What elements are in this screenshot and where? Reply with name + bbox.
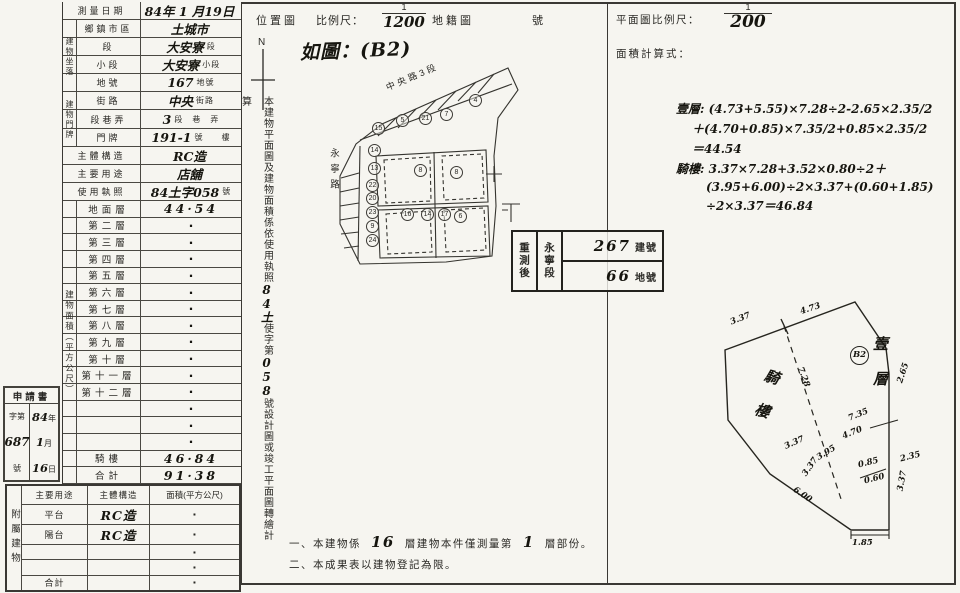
note2-text: 二、本成果表以建物登記為限。 <box>289 557 457 572</box>
section-divider <box>607 2 608 585</box>
resurvey-values: 267 建號 66 地號 <box>563 232 662 290</box>
area-row: 地面層 44·54 <box>63 201 241 218</box>
floor-value: · <box>141 234 241 250</box>
floor-label: 合計 <box>77 467 141 483</box>
note1-measured-floor: 1 <box>523 533 535 551</box>
group-label-building-area: 建物面積（平方公尺） <box>63 203 76 481</box>
attachment-structure: RC造 <box>88 525 150 544</box>
app-day: 16日 <box>32 461 56 475</box>
lot-number-marker: 20 <box>366 192 379 205</box>
row-value: RC造 <box>141 147 241 164</box>
floorplan-scale-label: 平面圖比例尺： <box>616 12 700 27</box>
row-value: 191-1 號 樓 <box>141 129 241 146</box>
source-statement: 本建物平面圖及建物面積係依使用執照84土使字第058號設計圖或竣工平面圖轉繪計算 <box>243 96 268 542</box>
structure-value: RC造 <box>101 525 137 544</box>
attachment-building-table: 附屬建物 主要用途 主體構造 面積(平方公尺) 平台 RC造 · 陽台 RC造 … <box>5 484 241 592</box>
handwritten-value: 土城市 <box>171 19 209 38</box>
north-letter: N <box>258 37 265 48</box>
lot-number-marker: 5 <box>396 114 409 127</box>
row-label: 主要用途 <box>63 165 141 182</box>
floor-value: · <box>141 434 241 450</box>
area-row: 第六層 · <box>63 284 241 301</box>
resurvey-stamp: 重測後 永寧段 267 建號 66 地號 <box>511 230 664 292</box>
area-calculation-label: 面積計算式： <box>616 46 691 61</box>
calculation-line: 壹層: (4.73+5.55)×7.28÷2-2.65×2.35/2 <box>676 100 960 117</box>
table-row: 地號 167 地號 <box>63 74 241 92</box>
attachment-rows: 主要用途 主體構造 面積(平方公尺) 平台 RC造 · 陽台 RC造 · <box>22 486 239 590</box>
lot-number-marker: 4 <box>469 94 482 107</box>
resurvey-title: 重測後 <box>513 232 538 290</box>
lot-number-marker: 9 <box>366 220 379 233</box>
floor-value: · <box>141 301 241 317</box>
attachment-structure <box>88 545 150 559</box>
table-row: 門牌 191-1 號 樓 <box>63 129 241 147</box>
area-row: 第九層 · <box>63 334 241 351</box>
area-row: 騎樓 46·84 <box>63 451 241 468</box>
floor-label: 第十一層 <box>77 367 141 383</box>
row-value: 中央 街路 <box>141 92 241 109</box>
row-label: 街路 <box>77 92 141 109</box>
attachment-side-label: 附屬建物 <box>7 486 22 590</box>
row-label: 測量日期 <box>63 2 141 19</box>
row-value: 84年 1 月19日 <box>141 2 241 19</box>
statement-part2: 使字第 <box>262 323 273 356</box>
handwritten-value: 191-1 <box>152 130 192 145</box>
floor-value: 44·54 <box>141 201 241 217</box>
application-number: 687 <box>4 435 29 449</box>
printed-suffix: 地號 <box>197 77 215 88</box>
row-label: 段巷弄 <box>77 110 141 127</box>
attachment-usage: 陽台 <box>22 525 88 544</box>
floor-label <box>77 417 141 433</box>
statement-permit-no: 058 <box>260 356 274 398</box>
floor-label: 第九層 <box>77 334 141 350</box>
lot-number-marker: 24 <box>366 234 379 247</box>
table-row: 街路 中央 街路 <box>63 92 241 110</box>
row-value: 店舖 <box>141 165 241 182</box>
fp-scale-numerator: 1 <box>745 3 750 12</box>
area-row: 第八層 · <box>63 317 241 334</box>
street-label-yongning-road: 永寧路 <box>326 148 340 195</box>
area-value: 91·38 <box>164 468 218 483</box>
floor-label: 第五層 <box>77 268 141 284</box>
note1-part1: 一、本建物係 <box>289 536 361 551</box>
land-number-unit: 地號 <box>635 269 657 284</box>
area-value: · <box>189 351 194 366</box>
area-value: · <box>189 318 194 333</box>
row-value: 大安寮 段 <box>141 38 241 55</box>
floor-label: 第十層 <box>77 351 141 367</box>
floor-label: 第二層 <box>77 218 141 234</box>
handwritten-value: RC造 <box>173 146 206 165</box>
floor-label: 騎樓 <box>77 451 141 467</box>
plot-label-first-floor: 壹層 <box>870 336 891 406</box>
lot-number-marker: 7 <box>440 108 453 121</box>
lot-number-marker: 8 <box>414 164 427 177</box>
area-value: · <box>189 251 194 266</box>
floor-value: 91·38 <box>141 467 241 483</box>
number-suffix: 號 <box>13 463 21 474</box>
row-label: 段 <box>77 38 141 55</box>
floor-value: · <box>141 417 241 433</box>
group-label-building-location: 建物坐落 <box>63 21 76 92</box>
handwritten-value: 大安寮 <box>162 55 200 74</box>
resurvey-land-row: 66 地號 <box>563 262 662 290</box>
floor-value: · <box>141 384 241 400</box>
floor-label: 第四層 <box>77 251 141 267</box>
statement-permit-year: 84土 <box>260 283 274 323</box>
calculation-line: 騎樓: 3.37×7.28+3.52×0.80÷2＋ <box>676 160 960 177</box>
attachment-usage: 平台 <box>22 505 88 524</box>
row-label: 主體構造 <box>63 147 141 164</box>
table-row: 段 大安寮 段 <box>63 38 241 56</box>
table-row: 主要用途 店舖 <box>63 165 241 183</box>
table-row: 主體構造 RC造 <box>63 147 241 165</box>
area-row: · <box>63 434 241 451</box>
area-value: · <box>189 218 194 233</box>
floor-value: · <box>141 401 241 417</box>
area-row: 第十層 · <box>63 351 241 368</box>
table-row: 使用執照 84土字058 號 <box>63 183 241 201</box>
plot-linework <box>700 292 958 568</box>
attachment-header: 主要用途 主體構造 面積(平方公尺) <box>22 486 239 505</box>
north-arrow-icon: N <box>250 34 276 114</box>
land-number: 66 <box>606 267 631 285</box>
calculation-line: ÷2×3.37＝46.84 <box>706 197 960 214</box>
area-row: 第二層 · <box>63 218 241 235</box>
dimension-label: 1.85 <box>852 538 873 548</box>
printed-suffix: 段 巷 弄 <box>174 114 219 125</box>
attachment-row: · <box>22 560 239 575</box>
note1-part2: 層建物本件僅測量第 <box>405 536 513 551</box>
floor-label <box>77 401 141 417</box>
attachment-row: 陽台 RC造 · <box>22 525 239 545</box>
area-value: · <box>189 334 194 349</box>
lot-number-marker: 13 <box>368 162 381 175</box>
area-value: · <box>189 384 194 399</box>
attachment-structure <box>88 576 150 590</box>
handwritten-value: 大安寮 <box>166 37 204 56</box>
area-calculation-block: 壹層: (4.73+5.55)×7.28÷2-2.65×2.35/2 ＋(4.7… <box>676 100 960 217</box>
building-info-table: 測量日期 84年 1 月19日 鄉鎮市區 土城市 段 大安寮 <box>62 2 241 201</box>
area-row: 第十二層 · <box>63 384 241 401</box>
printed-suffix: 號 <box>222 186 231 197</box>
area-value: · <box>189 235 194 250</box>
floor-value: · <box>141 367 241 383</box>
area-value: 46·84 <box>164 451 218 466</box>
attachment-area: · <box>150 505 239 524</box>
area-row: · <box>63 417 241 434</box>
header-usage: 主要用途 <box>22 486 88 504</box>
floor-label: 第六層 <box>77 284 141 300</box>
floor-value: · <box>141 218 241 234</box>
table-row: 小段 大安寮 小段 <box>63 56 241 74</box>
number-prefix: 字第 <box>9 411 25 422</box>
row-label: 門牌 <box>77 129 141 146</box>
floor-label: 第七層 <box>77 301 141 317</box>
attachment-row: 合計 · <box>22 576 239 590</box>
handwritten-value: 84土字058 <box>151 182 220 201</box>
handwritten-value: 167 <box>167 75 193 90</box>
floor-label: 第三層 <box>77 234 141 250</box>
building-number-unit: 建號 <box>635 239 657 254</box>
table-row: 測量日期 84年 1 月19日 <box>63 2 241 20</box>
handwritten-value: 店舖 <box>177 164 202 183</box>
area-value: · <box>189 285 194 300</box>
printed-suffix: 小段 <box>202 59 220 70</box>
floorplan-scale-fraction: 1 200 <box>724 3 772 30</box>
application-body: 字第 687 號 84年 1月 16日 <box>5 404 58 481</box>
statement-part1: 本建物平面圖及建物面積係依使用執照 <box>262 96 273 283</box>
attachment-row: 平台 RC造 · <box>22 505 239 525</box>
attachment-structure <box>88 560 150 574</box>
handwritten-value: 84年 1 月19日 <box>145 1 235 20</box>
floor-label: 第十二層 <box>77 384 141 400</box>
attachment-row: · <box>22 545 239 560</box>
note1-floors: 16 <box>371 533 395 551</box>
attachment-usage: 合計 <box>22 576 88 590</box>
area-value: · <box>189 401 194 416</box>
calculation-line: (3.95+6.00)÷2×3.37+(0.60+1.85) <box>706 180 960 194</box>
attachment-area: · <box>150 560 239 574</box>
area-value: · <box>189 268 194 283</box>
fp-scale-denominator: 200 <box>730 15 766 30</box>
application-title: 申請書 <box>5 388 58 404</box>
floor-area-table: 地面層 44·54 第二層 · 第三層 · <box>62 201 241 484</box>
location-scale-label: 比例尺： <box>316 12 364 28</box>
attachment-structure: RC造 <box>88 505 150 524</box>
area-row: 合計 91·38 <box>63 467 241 484</box>
cadastral-map-label: 地籍圖 <box>432 12 474 28</box>
header-area: 面積(平方公尺) <box>150 486 239 504</box>
floor-value: 46·84 <box>141 451 241 467</box>
row-value: 3 段 巷 弄 <box>141 110 241 127</box>
area-value: · <box>189 301 194 316</box>
building-number: 267 <box>594 237 631 255</box>
attachment-area: · <box>150 545 239 559</box>
area-row: 第四層 · <box>63 251 241 268</box>
area-row: 第五層 · <box>63 268 241 285</box>
scale-denominator: 1200 <box>383 15 425 30</box>
row-value: 土城市 <box>141 20 241 37</box>
attachment-usage <box>22 560 88 574</box>
handwritten-value: 3 <box>163 112 172 127</box>
lot-number-marker: 16 <box>401 208 414 221</box>
floor-value: · <box>141 334 241 350</box>
lot-number-marker: 8 <box>450 166 463 179</box>
row-label: 鄉鎮市區 <box>77 20 141 37</box>
row-value: 167 地號 <box>141 74 241 91</box>
lot-number-marker: 14 <box>368 144 381 157</box>
row-label: 使用執照 <box>63 183 141 200</box>
handwritten-value: 中央 <box>168 91 193 110</box>
application-date-col: 84年 1月 16日 <box>30 404 58 481</box>
printed-suffix: 段 <box>207 41 216 52</box>
scale-numerator: 1 <box>401 3 406 12</box>
plot-b2-marker: B2 <box>850 346 869 365</box>
resurvey-section: 永寧段 <box>538 232 563 290</box>
printed-suffix: 號 樓 <box>194 132 230 143</box>
area-row: · <box>63 401 241 418</box>
note1-part3: 層部份。 <box>545 536 593 551</box>
floor-value: · <box>141 284 241 300</box>
area-value: 44·54 <box>164 201 218 216</box>
calculation-line: ＋(4.70+0.85)×7.35/2+0.85×2.35/2 <box>692 120 960 137</box>
cadastral-map-sketch: 中央路3段 永寧路 15 5 21 7 4 14 13 22 20 23 9 2… <box>326 56 526 276</box>
floor-label: 地面層 <box>77 201 141 217</box>
lot-number-marker: 15 <box>372 122 385 135</box>
app-month: 1月 <box>36 435 52 449</box>
area-value: · <box>189 434 194 449</box>
lot-number-marker: 17 <box>438 208 451 221</box>
floor-value: · <box>141 317 241 333</box>
lot-number-marker: 23 <box>366 206 379 219</box>
group-label-building-address: 建物門牌 <box>63 93 76 146</box>
row-value: 大安寮 小段 <box>141 56 241 73</box>
attachment-area: · <box>150 525 239 544</box>
map-number-label: 號 <box>532 12 546 28</box>
structure-value: RC造 <box>101 505 137 524</box>
row-label: 小段 <box>77 56 141 73</box>
floor-value: · <box>141 251 241 267</box>
floor-label: 第八層 <box>77 317 141 333</box>
floor-value: · <box>141 351 241 367</box>
location-scale-fraction: 1 1200 <box>382 3 426 30</box>
row-value: 84土字058 號 <box>141 183 241 200</box>
map-linework <box>326 56 526 276</box>
app-year: 84年 <box>32 410 56 424</box>
scanned-survey-form: 測量日期 84年 1 月19日 鄉鎮市區 土城市 段 大安寮 <box>0 0 960 593</box>
attachment-area: · <box>150 576 239 590</box>
area-value: · <box>189 418 194 433</box>
table-row: 鄉鎮市區 土城市 <box>63 20 241 38</box>
area-value: · <box>189 368 194 383</box>
resurvey-building-row: 267 建號 <box>563 232 662 262</box>
note-2: 二、本成果表以建物登記為限。 <box>289 557 457 572</box>
application-stamp: 申請書 字第 687 號 84年 1月 16日 <box>3 386 60 482</box>
calculation-line: ＝44.54 <box>692 140 960 157</box>
area-row: 第三層 · <box>63 234 241 251</box>
attachment-usage <box>22 545 88 559</box>
table-row: 段巷弄 3 段 巷 弄 <box>63 110 241 128</box>
lot-number-marker: 21 <box>419 112 432 125</box>
floor-value: · <box>141 268 241 284</box>
area-row: 第七層 · <box>63 301 241 318</box>
lot-number-marker: 22 <box>366 179 379 192</box>
printed-suffix: 街路 <box>196 95 214 106</box>
area-row: 第十一層 · <box>63 367 241 384</box>
floor-label <box>77 434 141 450</box>
note-1: 一、本建物係16層建物本件僅測量第1層部份。 <box>289 533 593 551</box>
location-map-title: 位置圖 <box>256 12 298 28</box>
row-label: 地號 <box>77 74 141 91</box>
application-number-col: 字第 687 號 <box>5 404 30 481</box>
floorplan-plot: 壹層 騎樓 B2 3.37 4.73 7.28 2.65 7.35 4.70 3… <box>700 292 958 568</box>
header-structure: 主體構造 <box>88 486 150 504</box>
lot-number-marker: 14 <box>421 208 434 221</box>
lot-number-marker: 6 <box>454 210 467 223</box>
